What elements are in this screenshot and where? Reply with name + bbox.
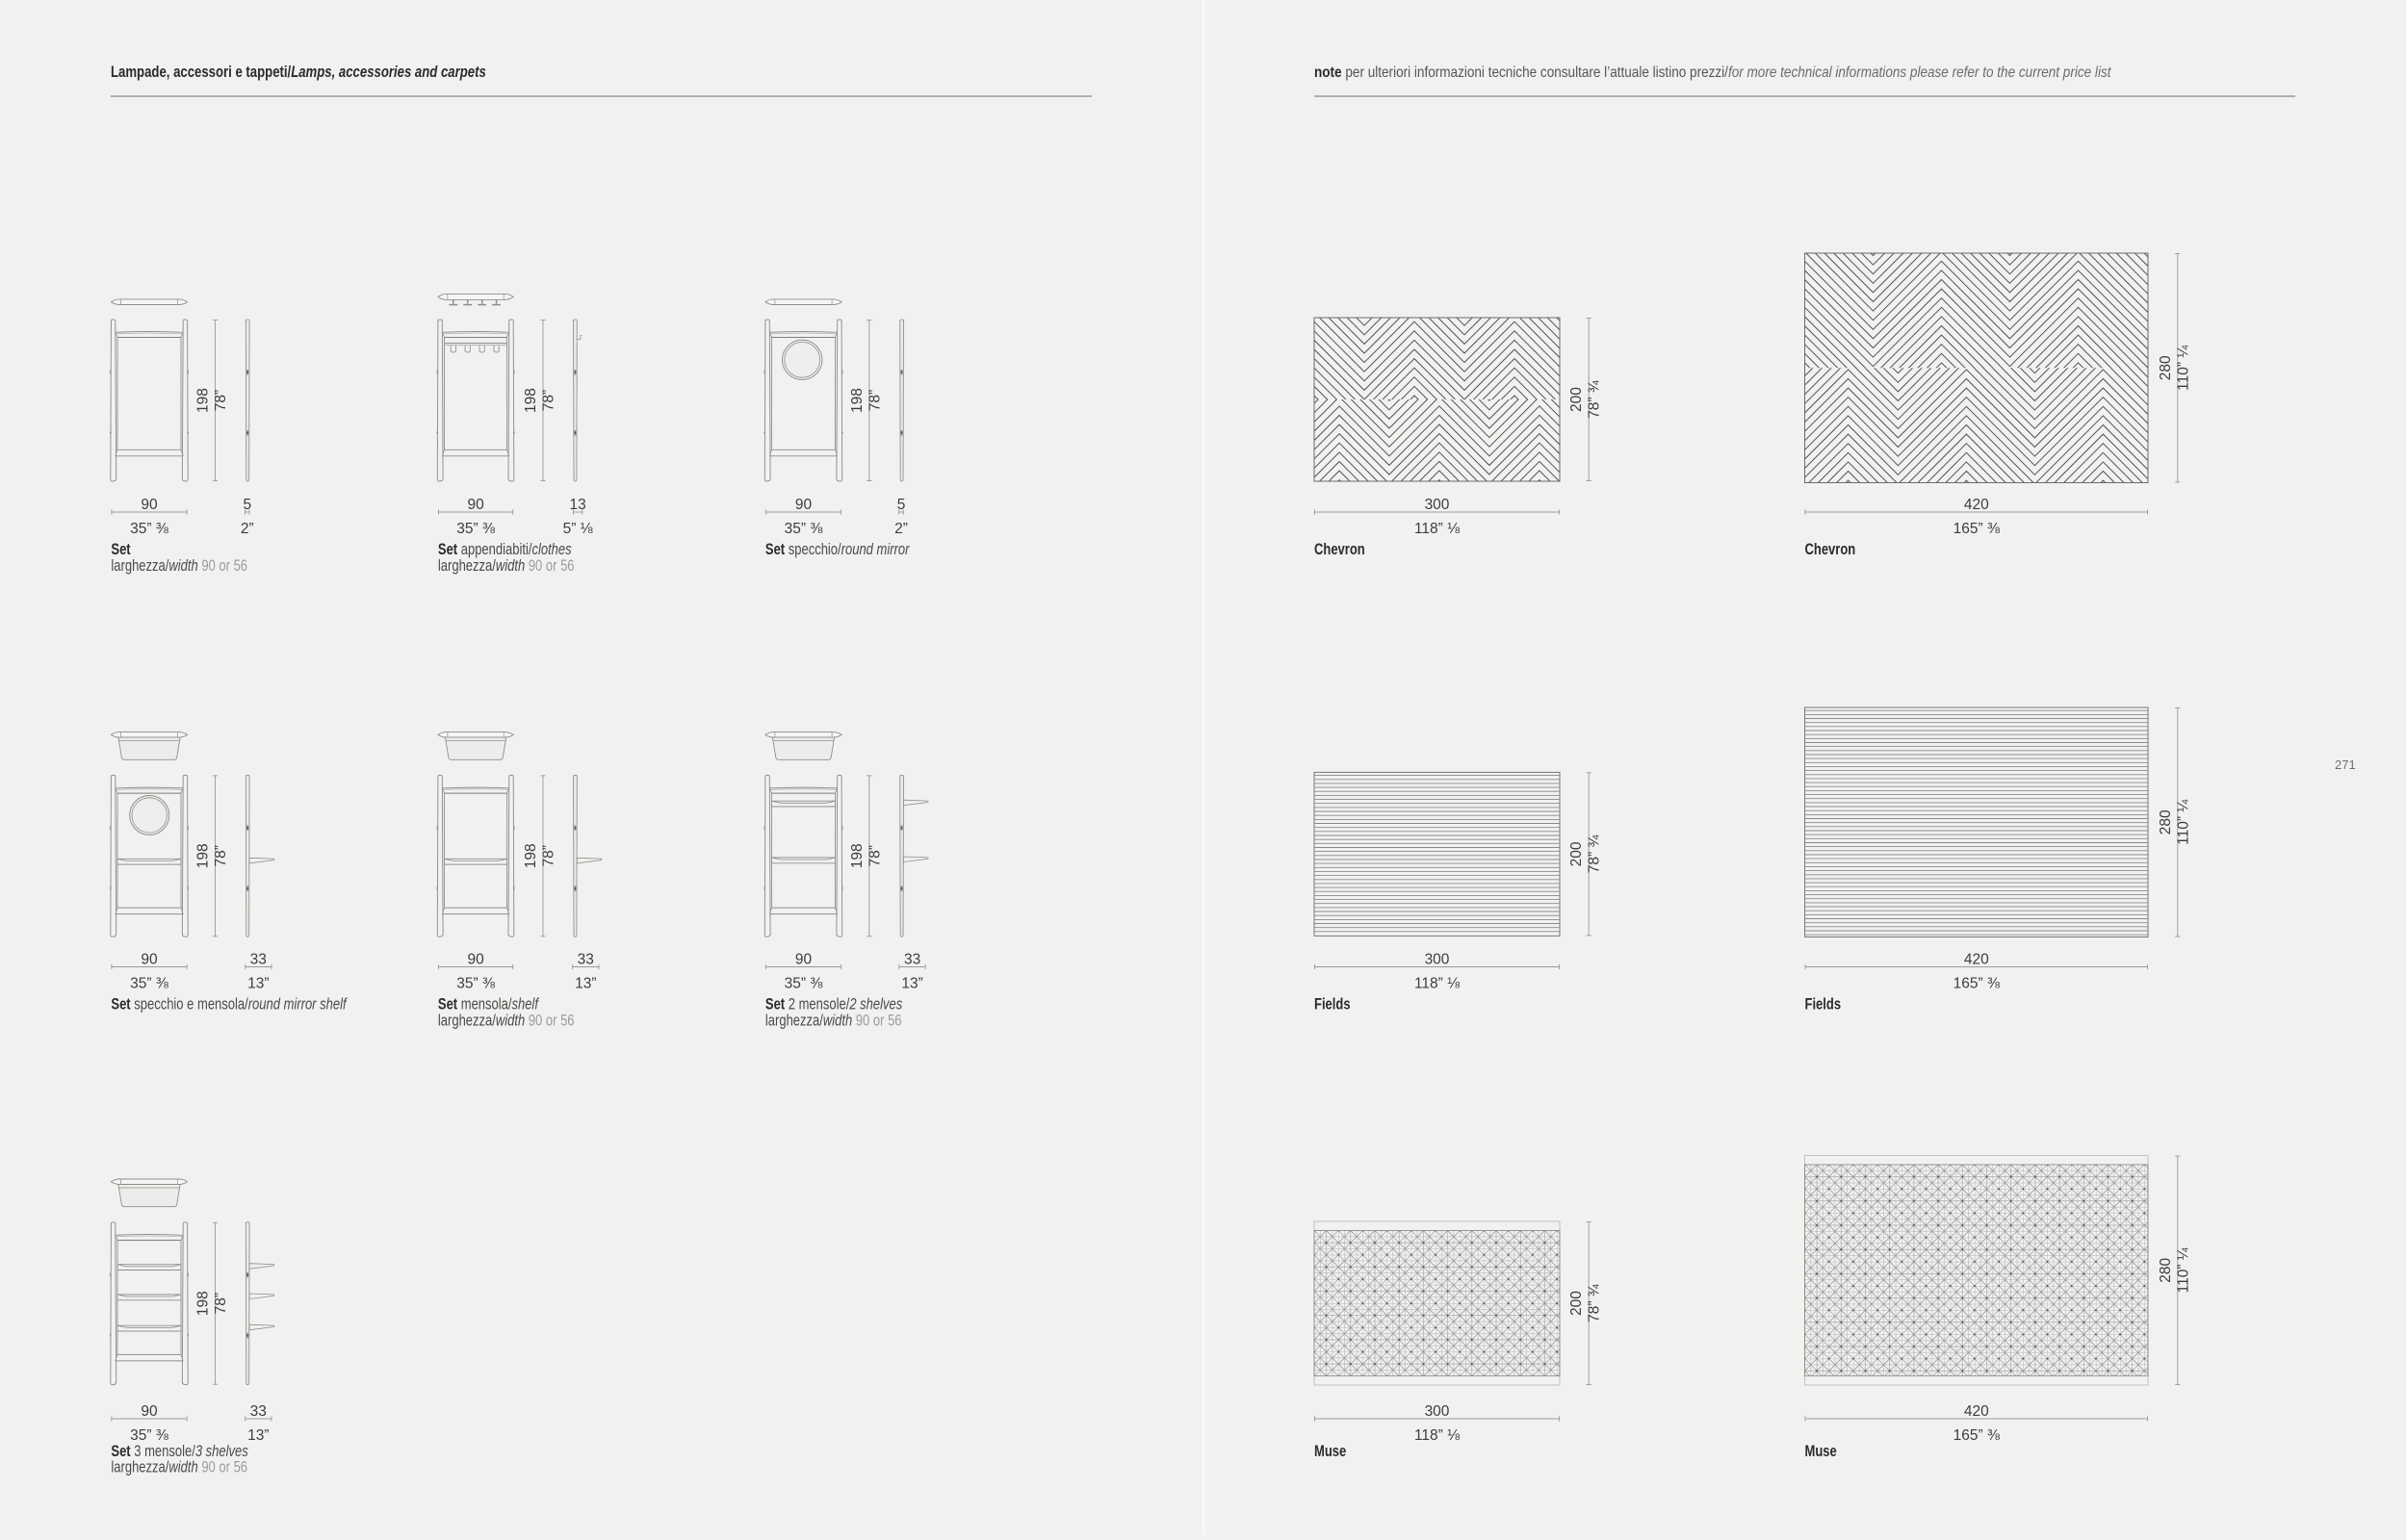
svg-text:198: 198 — [523, 843, 539, 868]
svg-text:35” ⅜: 35” ⅜ — [785, 975, 823, 991]
svg-text:300: 300 — [1425, 1403, 1450, 1420]
svg-text:Fields: Fields — [1314, 995, 1351, 1014]
svg-text:78”: 78” — [867, 845, 883, 866]
svg-text:33: 33 — [250, 1403, 267, 1420]
svg-text:90: 90 — [141, 1403, 158, 1420]
svg-text:118” ⅛: 118” ⅛ — [1414, 1427, 1460, 1444]
svg-text:110” ¼: 110” ¼ — [2175, 799, 2191, 845]
svg-text:35” ⅜: 35” ⅜ — [456, 521, 495, 537]
svg-text:280: 280 — [2158, 809, 2174, 834]
svg-text:300: 300 — [1425, 497, 1450, 513]
svg-text:35” ⅜: 35” ⅜ — [130, 521, 168, 537]
svg-text:larghezza/width 90 or 56: larghezza/width 90 or 56 — [111, 556, 247, 575]
svg-text:13”: 13” — [901, 975, 922, 991]
svg-text:Chevron: Chevron — [1805, 541, 1856, 559]
svg-text:78”: 78” — [541, 390, 557, 411]
svg-text:420: 420 — [1964, 497, 1989, 513]
svg-text:118” ⅛: 118” ⅛ — [1414, 521, 1460, 537]
svg-text:110” ¼: 110” ¼ — [2175, 345, 2191, 391]
svg-text:165” ⅜: 165” ⅜ — [1953, 521, 2000, 537]
svg-text:larghezza/width 90 or 56: larghezza/width 90 or 56 — [765, 1012, 902, 1030]
svg-text:165” ⅜: 165” ⅜ — [1953, 975, 2000, 991]
svg-text:90: 90 — [795, 497, 813, 513]
svg-text:5: 5 — [243, 497, 251, 513]
svg-text:118” ⅛: 118” ⅛ — [1414, 975, 1460, 991]
svg-text:78” ¾: 78” ¾ — [1587, 379, 1603, 419]
svg-text:200: 200 — [1568, 387, 1585, 412]
svg-text:90: 90 — [141, 951, 158, 967]
svg-text:90: 90 — [467, 497, 484, 513]
svg-text:13: 13 — [569, 497, 585, 513]
svg-text:78”: 78” — [867, 390, 883, 411]
svg-text:280: 280 — [2158, 355, 2174, 380]
svg-text:78”: 78” — [541, 845, 557, 866]
svg-text:198: 198 — [195, 388, 212, 413]
svg-text:420: 420 — [1964, 951, 1989, 967]
svg-text:larghezza/width 90 or 56: larghezza/width 90 or 56 — [111, 1458, 247, 1476]
svg-text:35” ⅜: 35” ⅜ — [130, 975, 168, 991]
svg-text:Lampade, accessori e tappeti/L: Lampade, accessori e tappeti/Lamps, acce… — [111, 63, 486, 81]
svg-text:300: 300 — [1425, 951, 1450, 967]
svg-text:198: 198 — [849, 388, 866, 413]
svg-text:78”: 78” — [213, 390, 229, 411]
svg-text:larghezza/width 90 or 56: larghezza/width 90 or 56 — [438, 556, 575, 575]
svg-text:13”: 13” — [247, 1427, 269, 1444]
svg-text:Set specchio e mensola/round m: Set specchio e mensola/round mirror shel… — [111, 995, 348, 1014]
svg-text:5” ⅛: 5” ⅛ — [563, 521, 593, 537]
svg-text:13”: 13” — [575, 975, 596, 991]
svg-text:35” ⅜: 35” ⅜ — [130, 1427, 168, 1444]
svg-text:33: 33 — [904, 951, 920, 967]
svg-text:2”: 2” — [894, 521, 908, 537]
svg-text:78”: 78” — [213, 845, 229, 866]
svg-text:90: 90 — [141, 497, 158, 513]
svg-text:78” ¾: 78” ¾ — [1587, 834, 1603, 874]
svg-text:280: 280 — [2158, 1257, 2174, 1282]
svg-text:13”: 13” — [247, 975, 269, 991]
svg-text:200: 200 — [1568, 841, 1585, 866]
svg-text:Set specchio/round mirror: Set specchio/round mirror — [765, 541, 910, 559]
svg-text:198: 198 — [849, 843, 866, 868]
svg-text:90: 90 — [795, 951, 813, 967]
svg-text:Muse: Muse — [1314, 1442, 1346, 1460]
svg-text:110” ¼: 110” ¼ — [2175, 1246, 2191, 1293]
svg-text:33: 33 — [250, 951, 267, 967]
svg-text:78”: 78” — [213, 1293, 229, 1314]
svg-text:Muse: Muse — [1805, 1442, 1837, 1460]
svg-text:5: 5 — [897, 497, 906, 513]
svg-text:2”: 2” — [241, 521, 254, 537]
svg-text:Fields: Fields — [1805, 995, 1842, 1014]
svg-text:Chevron: Chevron — [1314, 541, 1365, 559]
svg-text:35” ⅜: 35” ⅜ — [785, 521, 823, 537]
svg-text:larghezza/width 90 or 56: larghezza/width 90 or 56 — [438, 1012, 575, 1030]
svg-text:78” ¾: 78” ¾ — [1587, 1283, 1603, 1322]
svg-text:33: 33 — [578, 951, 594, 967]
svg-text:271: 271 — [2335, 757, 2356, 772]
svg-text:198: 198 — [523, 388, 539, 413]
svg-text:90: 90 — [467, 951, 484, 967]
svg-text:198: 198 — [195, 843, 212, 868]
svg-text:35” ⅜: 35” ⅜ — [456, 975, 495, 991]
svg-text:165” ⅜: 165” ⅜ — [1953, 1427, 2000, 1444]
svg-text:420: 420 — [1964, 1403, 1989, 1420]
svg-text:note per ulteriori informazion: note per ulteriori informazioni tecniche… — [1314, 64, 2111, 81]
svg-text:200: 200 — [1568, 1291, 1585, 1316]
svg-text:198: 198 — [195, 1291, 212, 1316]
